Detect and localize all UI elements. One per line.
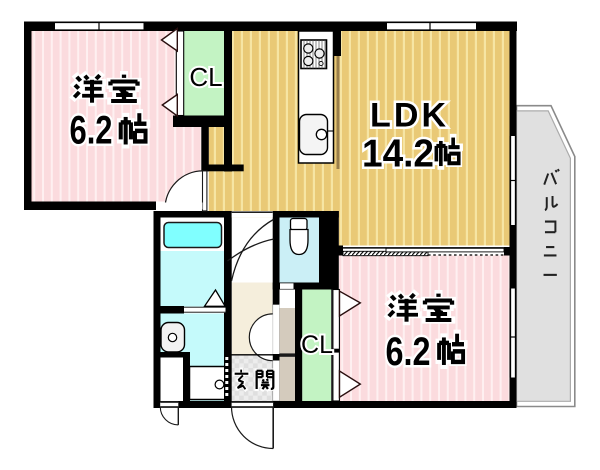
- svg-text:CL: CL: [301, 331, 333, 359]
- svg-text:LDK: LDK: [370, 97, 446, 135]
- svg-text:14.2: 14.2: [362, 133, 434, 176]
- svg-text:6.2: 6.2: [70, 109, 113, 153]
- svg-text:6.2: 6.2: [386, 330, 431, 374]
- svg-text:CL: CL: [189, 62, 222, 92]
